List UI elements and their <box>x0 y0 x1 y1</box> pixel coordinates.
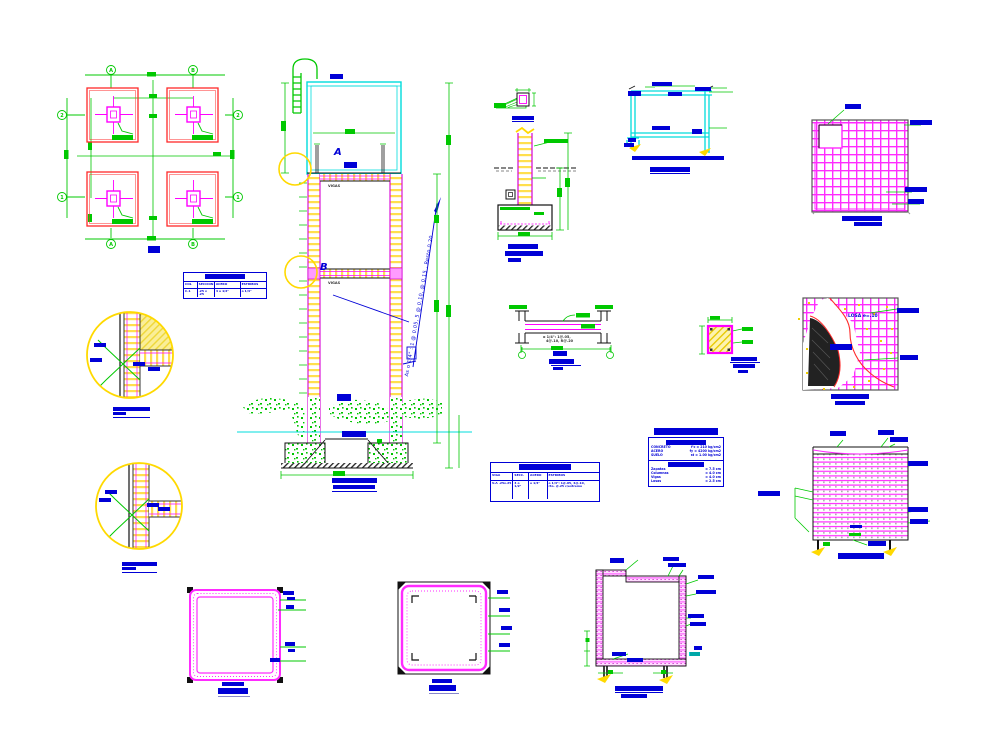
tank-wall-elevation <box>755 428 933 560</box>
label-smudge: @.15 <box>287 597 295 600</box>
bottom-slab-plan <box>798 288 910 402</box>
losa-label: LOSA e=.10 <box>848 315 878 320</box>
axis-bubble-2: 2 <box>60 113 64 119</box>
label-smudge: TAPA <box>830 431 846 436</box>
bottom-slab-title: PLANTA DE FONDO <box>831 394 869 399</box>
table-header: CUADRO DE VIGAS <box>519 464 571 470</box>
label-smudge: o 1/4" <box>908 507 928 512</box>
label-smudge: o 3/8" @ .20 <box>910 120 932 125</box>
tank-walls <box>307 82 401 174</box>
bottom-slab-scale: ESC. 1/25 <box>835 401 865 405</box>
vigas-label: VIGAS <box>328 185 340 189</box>
label-smudge: e=.07 <box>627 658 643 662</box>
section-letter-b: B <box>320 263 328 273</box>
beam-section-scale: ESC. 1/10 <box>733 364 755 368</box>
detail-a-title: DETALLE A <box>113 407 150 411</box>
label-smudge: o 1/4" <box>663 557 679 561</box>
detail-b-title: DETALLE B <box>122 562 157 566</box>
hatch-opening <box>819 125 842 148</box>
tank-elevation <box>237 55 472 490</box>
tank-section-title: CORTE DE TANQUE DE AGUA <box>615 686 663 691</box>
label-smudge: o 3/8" <box>905 187 927 192</box>
water-label: N.F. -1.20 <box>342 431 366 437</box>
label-smudge: V-A <box>692 129 702 134</box>
section-letter-a: A <box>334 148 342 158</box>
label-smudge: o 3/8" @ .20 <box>900 355 918 360</box>
detail-circle-b <box>95 460 195 560</box>
cf-title-2: COLUMNA - ZAPATA <box>505 251 543 256</box>
tank-section-scale: ESC. 1/20 <box>621 694 647 698</box>
label-smudge: @ .15 <box>696 590 716 594</box>
label-smudge: V-A <box>553 351 567 356</box>
label-smudge: o 1/4" <box>285 642 295 646</box>
label-smudge: o 1/4" <box>698 575 714 579</box>
label-smudge: NPT <box>628 138 636 142</box>
column-footing-detail <box>488 128 588 240</box>
label-smudge: @ .15 <box>499 643 510 647</box>
top-slab-plan <box>808 98 923 216</box>
specs-title: ESPECIFICACIONES <box>654 428 718 435</box>
label-smudge: o 1/4" <box>688 614 704 618</box>
section-line-label: CORTE TIPICO DE TANQUE APOYADO <box>632 156 724 160</box>
label-smudge: C-1 <box>90 358 102 362</box>
label-smudge: DET. A <box>344 162 357 168</box>
label-smudge: @ .15 <box>668 563 686 567</box>
svg-text:B: B <box>191 242 195 248</box>
wall-elevation-title: ELEVACION DE TANQUE <box>838 553 884 559</box>
label-smudge: o 1/4" <box>283 591 294 595</box>
label-smudge: e=.05 <box>270 658 280 662</box>
fplan-title: PLANTA <box>148 246 160 253</box>
detail-a-scale: ESC. 1/10 <box>113 412 126 415</box>
label-smudge: e=.05 <box>148 367 160 371</box>
elevation-title: TANQUE ELEVADO <box>332 478 377 483</box>
label-smudge: NPT <box>694 646 702 650</box>
label-smudge: V-A <box>105 490 117 494</box>
label-smudge: e=.05 <box>850 525 862 528</box>
label-smudge: LOSA <box>668 92 682 96</box>
axis-bubble-b: B <box>191 68 195 74</box>
axis-bubble-a: A <box>109 68 113 74</box>
label-smudge: e=0.10 <box>652 126 670 130</box>
specs-box: ESPECIFICACIONES CONCRETO CONCRETOf'c = … <box>648 427 724 487</box>
beam-section-title: SECCION V-A <box>731 357 757 361</box>
top-slab-title: PLANTA DE TAPA <box>842 216 882 221</box>
label-smudge: o 1/4" <box>286 605 294 609</box>
cf-title-1: DETALLE DE <box>508 244 538 249</box>
label-smudge: @.15 <box>288 649 295 652</box>
plan2-subtitle: CUERPO TANQUE <box>429 685 456 691</box>
specs-sub2: RECUBRIM. <box>668 462 704 467</box>
anchor-detail-title: DET. ANCLAJE <box>512 116 534 120</box>
label-smudge: TAPA <box>628 91 641 96</box>
label-smudge: V-A <box>868 541 886 546</box>
label-smudge: BOCA <box>845 104 861 109</box>
beam-schedule-table: CUADRO DE VIGAS VIGA SECC. ACERO ESTRIBO… <box>490 462 600 502</box>
detail-b-scale: ESC. 1/10 <box>122 567 136 570</box>
ground-label: NTN <box>337 394 351 401</box>
label-smudge: o 1/4" <box>133 362 145 366</box>
beam-section-sub: - <box>738 370 748 373</box>
label-smudge: @ .15 <box>499 608 510 612</box>
plan2-title: PLANTA <box>432 679 452 683</box>
label-smudge: FONDO <box>612 652 626 656</box>
tank-detail-title: DETALLE DE TAPA <box>650 167 690 172</box>
tank-plan-2 <box>392 576 512 680</box>
tank-top-label: TAPA <box>330 74 343 79</box>
cad-sheet: A B A B 2 1 2 1 PLANTA CUADRO DE COLUMNA… <box>0 0 1000 751</box>
detail-circle-a <box>88 310 188 410</box>
label-smudge: TAPA <box>610 558 624 563</box>
label-smudge: +0.00 <box>624 143 634 147</box>
footings <box>281 439 413 468</box>
label-smudge: o 1/4" <box>501 626 512 630</box>
label-smudge: o 1/4" @ .15 <box>908 461 928 466</box>
label-smudge: e=.05 <box>158 507 170 511</box>
top-slab-scale: ESC. 1/25 <box>854 222 882 226</box>
label-smudge: o 1/4" <box>497 590 508 594</box>
label-smudge: o 1/4" <box>758 491 780 496</box>
label-smudge: V-A <box>94 343 106 347</box>
beam-stirrup-note2: 4@.10, R@.20 <box>546 340 573 344</box>
plan1-title: PLANTA <box>222 682 244 686</box>
label-smudge: o 1/4" <box>695 87 711 91</box>
label-smudge: o 3/8" @ .20 <box>897 308 919 313</box>
svg-text:A: A <box>109 242 113 248</box>
label-smudge: @ .20 <box>908 199 924 204</box>
label-smudge: e = 0.05 <box>652 82 672 86</box>
beam-detail-scale: ESC. <box>553 367 563 370</box>
label-smudge: o 1/4" <box>878 430 894 435</box>
axis-bubble-1: 1 <box>60 195 64 201</box>
plan1-subtitle: TAPA TANQUE <box>218 688 248 694</box>
vigas-label: VIGAS <box>328 282 340 286</box>
label-smudge: o 1/4" <box>830 344 852 350</box>
cf-title-3: ESC 1/25 <box>508 258 521 262</box>
label-smudge: +.00 <box>690 652 700 656</box>
label-smudge: C-1 <box>99 498 111 502</box>
beam-detail-title: DETALLE VIGA <box>549 359 574 364</box>
foundation-plan: A B A B 2 1 2 1 <box>55 58 255 258</box>
label-smudge: @ .15 <box>910 519 928 524</box>
label-smudge: @ .15 <box>690 622 706 626</box>
label-smudge: @ .20 <box>890 437 908 442</box>
elevation-scale: ELEVACION ESC. 1/25 <box>333 485 375 489</box>
detail-a-bubble <box>279 153 311 185</box>
